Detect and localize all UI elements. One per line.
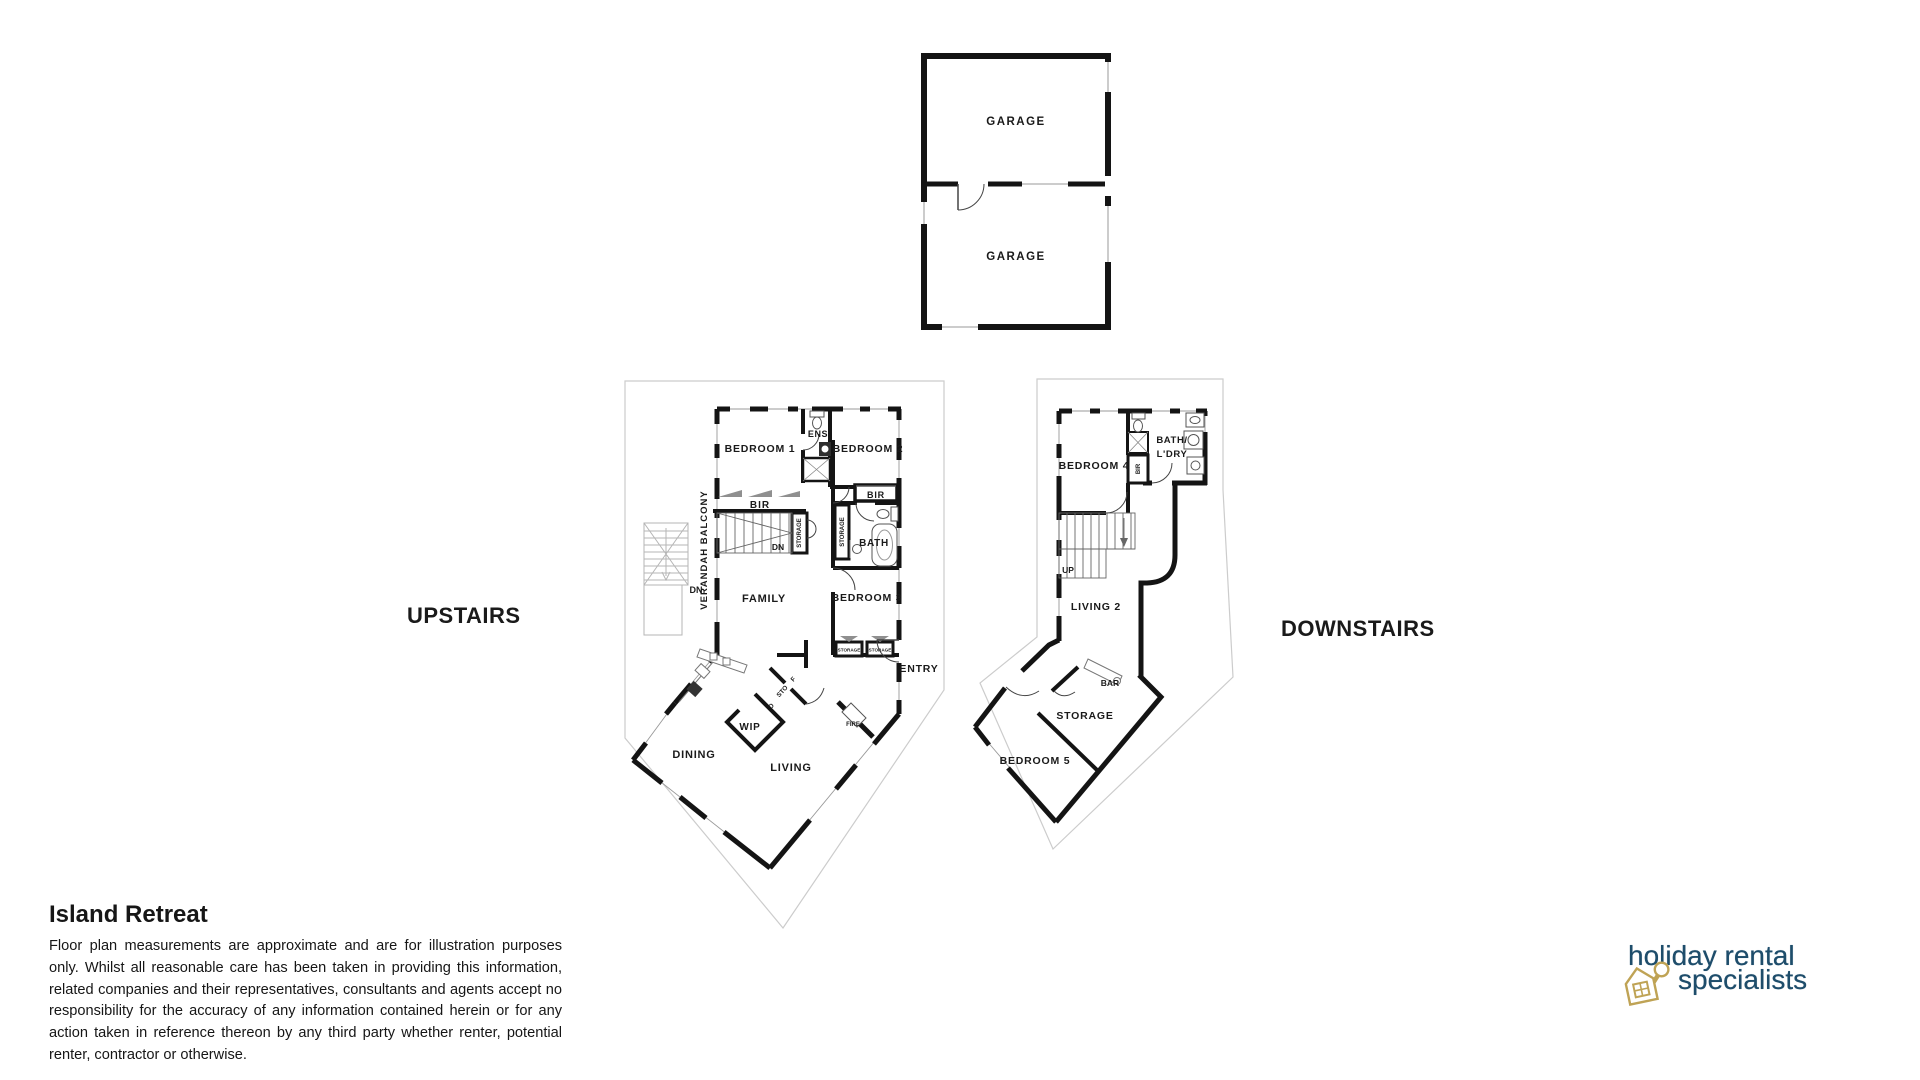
- bedroom1-bir-label: BIR: [750, 500, 770, 511]
- garage-room-1-label: GARAGE: [986, 116, 1045, 128]
- bedroom3-label: BEDROOM 3: [832, 592, 903, 604]
- downstairs-section-label: DOWNSTAIRS: [1281, 616, 1435, 642]
- page-title: Island Retreat: [49, 901, 562, 929]
- bedroom1-label: BEDROOM 1: [725, 443, 796, 455]
- stairs-storage-label: STORAGE: [797, 518, 803, 548]
- garage-floor-plan: GARAGE GARAGE: [921, 53, 1111, 330]
- bedroom4-bir-label: BIR: [1136, 463, 1142, 474]
- upstairs-section-label: UPSTAIRS: [407, 603, 521, 629]
- garage-floor: [921, 53, 1111, 330]
- bedroom2-bir-label: BIR: [867, 490, 885, 500]
- bedroom3-storage-left-label: STORAGE: [838, 648, 861, 653]
- bedroom3-storage-right-label: STORAGE: [869, 648, 892, 653]
- family-label: FAMILY: [742, 593, 786, 605]
- ens-label: ENS: [808, 429, 828, 439]
- bedroom5-label: BEDROOM 5: [1000, 755, 1071, 767]
- verandah-dn-label: DN: [690, 585, 703, 595]
- bedroom4-label: BEDROOM 4: [1059, 460, 1130, 472]
- wip-label: WIP: [739, 722, 760, 733]
- living2-label: LIVING 2: [1071, 601, 1121, 613]
- bath-label: BATH: [859, 538, 889, 549]
- bath-ldry-label-line2: L'DRY: [1157, 449, 1188, 460]
- laundry-trough-icon: [1187, 457, 1204, 474]
- disclaimer-text: Floor plan measurements are approximate …: [49, 936, 562, 1067]
- entry-label: ENTRY: [899, 663, 938, 675]
- upstairs-floor-plan: BEDROOM 1 ENS BEDROOM 2 BIR BIR STORAGE …: [625, 381, 944, 928]
- storage-room-label: STORAGE: [1056, 710, 1113, 722]
- downstairs-closets: [1128, 432, 1148, 483]
- laundry-sink-icon: [1186, 413, 1204, 427]
- floor-plan-page: GARAGE GARAGE: [0, 0, 1920, 1080]
- house-keyring-key-icon: [1618, 956, 1694, 1016]
- living-label: LIVING: [770, 762, 811, 774]
- fire-label: FIRE: [846, 722, 860, 728]
- bath-ldry-label-line1: BATH/: [1156, 435, 1187, 446]
- bedroom2-label: BEDROOM 2: [833, 443, 904, 455]
- stairs-dn-label: DN: [772, 542, 784, 552]
- footer: Island Retreat Floor plan measurements a…: [49, 901, 562, 1067]
- bar-label: BAR: [1101, 678, 1119, 688]
- downstairs-floor-plan: BEDROOM 4 BATH/ L'DRY BIR UP LIVING 2 BA…: [975, 379, 1233, 849]
- garage-room-2-label: GARAGE: [986, 251, 1045, 263]
- dining-label: DINING: [672, 749, 715, 761]
- stairs-up-label: UP: [1062, 565, 1074, 575]
- ens-vanity-icon: [819, 442, 831, 456]
- bath-storage-label: STORAGE: [840, 517, 846, 547]
- holiday-rental-specialists-logo: holiday rental specialists: [1620, 944, 1890, 1024]
